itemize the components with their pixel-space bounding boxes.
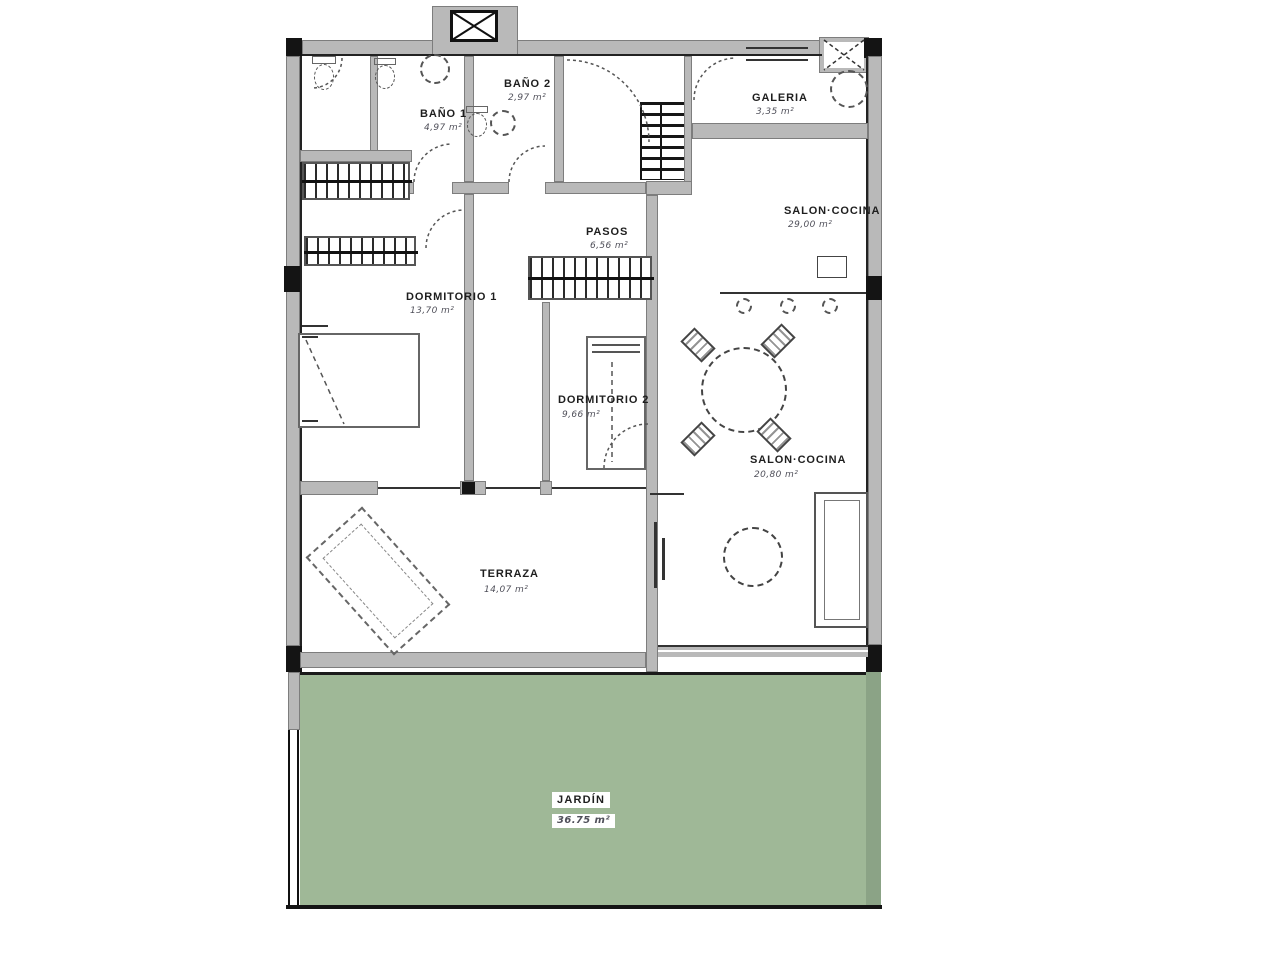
room-label-bano2: BAÑO 2 bbox=[504, 78, 551, 90]
garden-bottom-line bbox=[286, 905, 882, 909]
wall bbox=[300, 150, 412, 162]
garden-area bbox=[300, 672, 866, 905]
door-arc-icon bbox=[414, 144, 452, 182]
column-icon bbox=[866, 276, 882, 300]
bed-corner bbox=[302, 336, 318, 338]
toilet-icon bbox=[467, 113, 487, 137]
bidet-icon bbox=[375, 65, 395, 89]
room-label-jardin: JARDÍN bbox=[552, 792, 610, 808]
counter-line bbox=[746, 47, 808, 49]
bed-pillow-line bbox=[592, 351, 640, 353]
tv-unit-icon bbox=[662, 538, 665, 580]
wall bbox=[868, 56, 882, 645]
bar-stool-icon bbox=[736, 298, 752, 314]
room-area-bano1: 4,97 m² bbox=[424, 124, 462, 133]
wall bbox=[452, 182, 509, 194]
room-area-salon-cocina: 20,80 m² bbox=[754, 471, 798, 480]
wardrobe-rod bbox=[528, 277, 654, 280]
room-area-pasos: 6,56 m² bbox=[590, 242, 628, 251]
bed-icon bbox=[298, 333, 420, 428]
stairs-rail bbox=[660, 102, 662, 180]
slider-window bbox=[378, 487, 460, 489]
door-arc-icon bbox=[426, 210, 464, 248]
room-label-pasos: PASOS bbox=[586, 226, 628, 238]
wardrobe-rod bbox=[304, 251, 418, 254]
column-icon bbox=[462, 482, 475, 494]
wardrobe-rod bbox=[302, 180, 412, 183]
bed-pillow-line bbox=[592, 344, 640, 346]
slider-window bbox=[486, 487, 540, 489]
room-label-galeria: GALERIA bbox=[752, 92, 808, 104]
stairs-icon bbox=[640, 102, 684, 180]
room-label-salon-cocina: SALON·COCINA bbox=[750, 454, 846, 466]
toilet-icon bbox=[466, 106, 488, 113]
room-area-dormitorio2: 9,66 m² bbox=[562, 411, 600, 420]
room-label-dormitorio2: DORMITORIO 2 bbox=[558, 394, 649, 406]
room-label-bano1: BAÑO 1 bbox=[420, 108, 467, 120]
counter-line bbox=[746, 59, 808, 61]
wardrobe-icon bbox=[302, 162, 410, 200]
chair-icon bbox=[680, 421, 715, 456]
glazing-wall bbox=[658, 645, 868, 657]
room-area-bano2: 2,97 m² bbox=[508, 94, 546, 103]
shower-icon bbox=[420, 54, 450, 84]
lounge-chair-icon bbox=[306, 507, 451, 656]
room-area-jardin: 36.75 m² bbox=[552, 814, 615, 828]
wall bbox=[692, 123, 868, 139]
column-icon bbox=[866, 645, 882, 672]
washing-machine-icon bbox=[830, 70, 868, 108]
tv-unit-icon bbox=[654, 522, 657, 588]
room-area-galeria: 3,35 m² bbox=[756, 108, 794, 117]
toilet-icon bbox=[312, 56, 336, 64]
garden-right-edge bbox=[866, 672, 881, 905]
toilet-icon bbox=[314, 64, 334, 90]
column-icon bbox=[284, 266, 300, 292]
room-area-terraza: 14,07 m² bbox=[484, 586, 528, 595]
sofa-icon bbox=[814, 492, 868, 628]
column-icon bbox=[286, 38, 302, 56]
wardrobe-icon bbox=[304, 236, 416, 266]
wall bbox=[554, 56, 564, 182]
door-arc-icon bbox=[567, 60, 649, 142]
floor-plan: BAÑO 1 4,97 m² BAÑO 2 2,97 m² GALERIA 3,… bbox=[0, 0, 1280, 960]
bar-stool-icon bbox=[822, 298, 838, 314]
shelf-line bbox=[650, 493, 684, 495]
wall bbox=[300, 481, 378, 495]
bed-corner bbox=[302, 420, 318, 422]
garden-left-wall-stub bbox=[288, 672, 300, 730]
fence-icon bbox=[288, 730, 290, 905]
room-area-salon-cocina-top: 29,00 m² bbox=[788, 221, 832, 230]
wall bbox=[540, 481, 552, 495]
slider-window bbox=[552, 487, 646, 489]
room-area-dormitorio1: 13,70 m² bbox=[410, 307, 454, 316]
kitchen-island-icon bbox=[817, 256, 847, 278]
lounge-chair-inner bbox=[323, 523, 434, 638]
room-label-terraza: TERRAZA bbox=[480, 568, 539, 580]
shelf-line bbox=[302, 325, 328, 327]
fence-icon bbox=[297, 730, 299, 905]
column-icon bbox=[864, 38, 882, 58]
door-arc-icon bbox=[694, 58, 736, 100]
wall bbox=[464, 194, 474, 481]
chair-icon bbox=[680, 327, 715, 362]
wall bbox=[542, 302, 550, 481]
wall bbox=[684, 56, 692, 182]
wall bbox=[545, 182, 646, 194]
sink-icon bbox=[490, 110, 516, 136]
bar-stool-icon bbox=[780, 298, 796, 314]
elevator-icon bbox=[450, 10, 498, 42]
sofa-seat bbox=[824, 500, 860, 620]
room-label-salon-cocina-top: SALON·COCINA bbox=[784, 205, 880, 217]
door-arc-icon bbox=[509, 146, 545, 182]
bidet-icon bbox=[374, 58, 396, 65]
wardrobe-icon bbox=[528, 256, 652, 300]
wall bbox=[646, 181, 692, 195]
vent-shaft-icon bbox=[820, 38, 868, 72]
wall bbox=[300, 652, 646, 668]
bar-counter-line bbox=[720, 292, 866, 294]
room-label-dormitorio1: DORMITORIO 1 bbox=[406, 291, 497, 303]
coffee-table-icon bbox=[723, 527, 783, 587]
